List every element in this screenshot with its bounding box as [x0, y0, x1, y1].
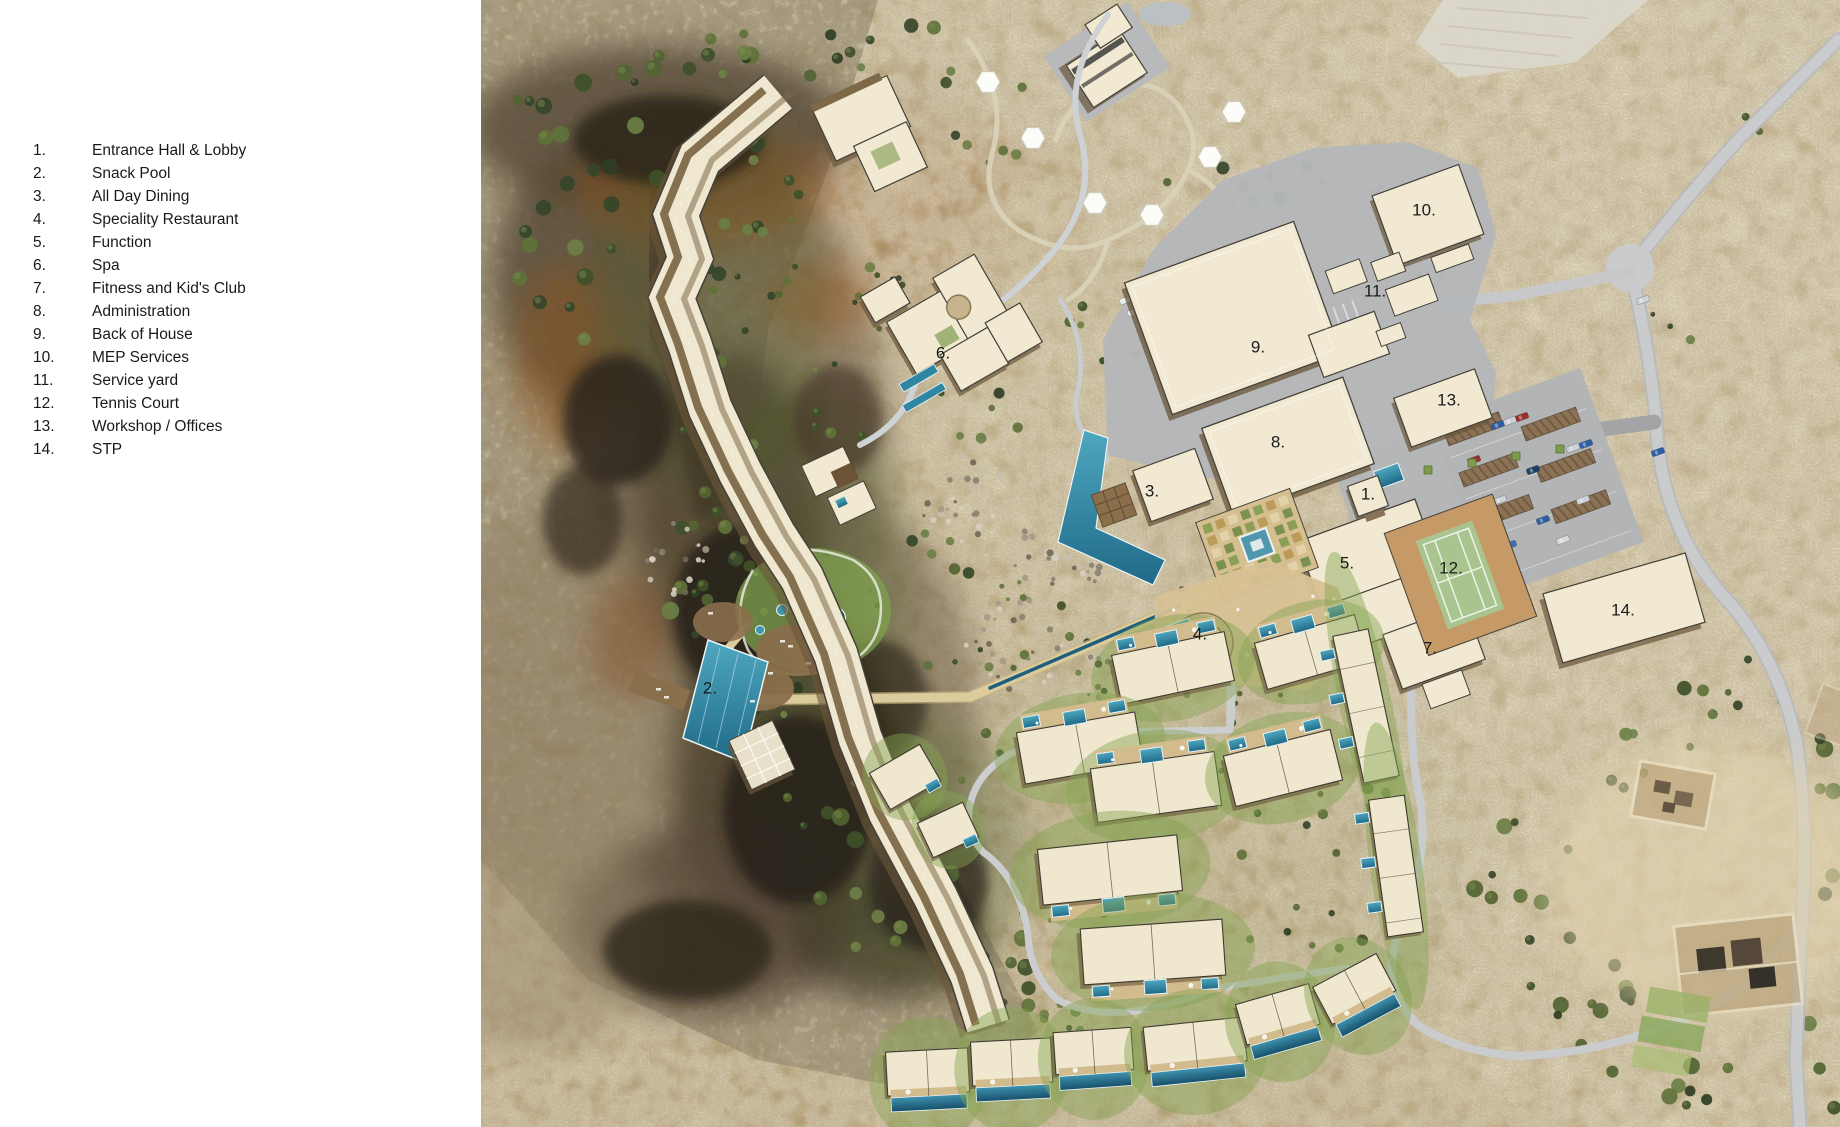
legend-item-label: MEP Services — [92, 346, 189, 369]
terrain: 1.2.3.4.5.6.7.8.9.10.11.12.13.14. — [408, 0, 1840, 1127]
map-label-7: 7. — [1423, 639, 1437, 658]
legend-item-number: 6. — [33, 254, 92, 277]
pond — [1139, 2, 1191, 26]
map-label-1: 1. — [1361, 485, 1375, 504]
legend-item-label: Speciality Restaurant — [92, 208, 238, 231]
legend-item-11: 11.Service yard — [33, 369, 246, 392]
map-label-6: 6. — [936, 344, 950, 363]
legend-item-9: 9.Back of House — [33, 323, 246, 346]
legend-item-13: 13.Workshop / Offices — [33, 415, 246, 438]
legend-item-number: 9. — [33, 323, 92, 346]
legend-item-number: 10. — [33, 346, 92, 369]
legend-item-7: 7.Fitness and Kid's Club — [33, 277, 246, 300]
map-label-9: 9. — [1251, 338, 1265, 357]
legend-item-label: Service yard — [92, 369, 178, 392]
map-label-4: 4. — [1193, 625, 1207, 644]
legend-item-label: Entrance Hall & Lobby — [92, 139, 246, 162]
legend-item-number: 2. — [33, 162, 92, 185]
map-label-10: 10. — [1412, 201, 1436, 220]
legend-item-14: 14.STP — [33, 438, 246, 461]
legend-panel: 1.Entrance Hall & Lobby2.Snack Pool3.All… — [33, 139, 246, 461]
site-plan-map: 1.2.3.4.5.6.7.8.9.10.11.12.13.14. — [408, 0, 1840, 1127]
legend-item-number: 3. — [33, 185, 92, 208]
legend-item-label: Function — [92, 231, 151, 254]
map-label-5: 5. — [1340, 554, 1354, 573]
map-label-12: 12. — [1439, 559, 1463, 578]
legend-item-number: 5. — [33, 231, 92, 254]
legend-item-number: 12. — [33, 392, 92, 415]
legend-item-number: 1. — [33, 139, 92, 162]
map-label-8: 8. — [1271, 433, 1285, 452]
legend-item-4: 4.Speciality Restaurant — [33, 208, 246, 231]
legend-item-label: Snack Pool — [92, 162, 170, 185]
legend-item-12: 12.Tennis Court — [33, 392, 246, 415]
legend-item-label: Administration — [92, 300, 190, 323]
legend-item-number: 14. — [33, 438, 92, 461]
legend-item-8: 8.Administration — [33, 300, 246, 323]
map-label-3: 3. — [1145, 482, 1159, 501]
legend-item-label: All Day Dining — [92, 185, 189, 208]
legend-item-label: Spa — [92, 254, 120, 277]
legend-item-6: 6.Spa — [33, 254, 246, 277]
legend-item-label: STP — [92, 438, 122, 461]
legend-item-number: 11. — [33, 369, 92, 392]
legend-item-number: 4. — [33, 208, 92, 231]
legend-item-label: Back of House — [92, 323, 193, 346]
map-label-14: 14. — [1611, 601, 1635, 620]
legend-item-5: 5.Function — [33, 231, 246, 254]
legend-item-number: 8. — [33, 300, 92, 323]
site-plan-page: 1.Entrance Hall & Lobby2.Snack Pool3.All… — [0, 0, 1840, 1127]
legend-item-label: Tennis Court — [92, 392, 179, 415]
map-label-2: 2. — [703, 679, 717, 698]
map-label-13: 13. — [1437, 391, 1461, 410]
legend-item-1: 1.Entrance Hall & Lobby — [33, 139, 246, 162]
legend-item-label: Workshop / Offices — [92, 415, 222, 438]
legend-item-number: 13. — [33, 415, 92, 438]
legend-item-2: 2.Snack Pool — [33, 162, 246, 185]
legend-item-10: 10.MEP Services — [33, 346, 246, 369]
legend-item-number: 7. — [33, 277, 92, 300]
legend-item-3: 3.All Day Dining — [33, 185, 246, 208]
map-label-11: 11. — [1364, 282, 1386, 301]
legend-item-label: Fitness and Kid's Club — [92, 277, 246, 300]
